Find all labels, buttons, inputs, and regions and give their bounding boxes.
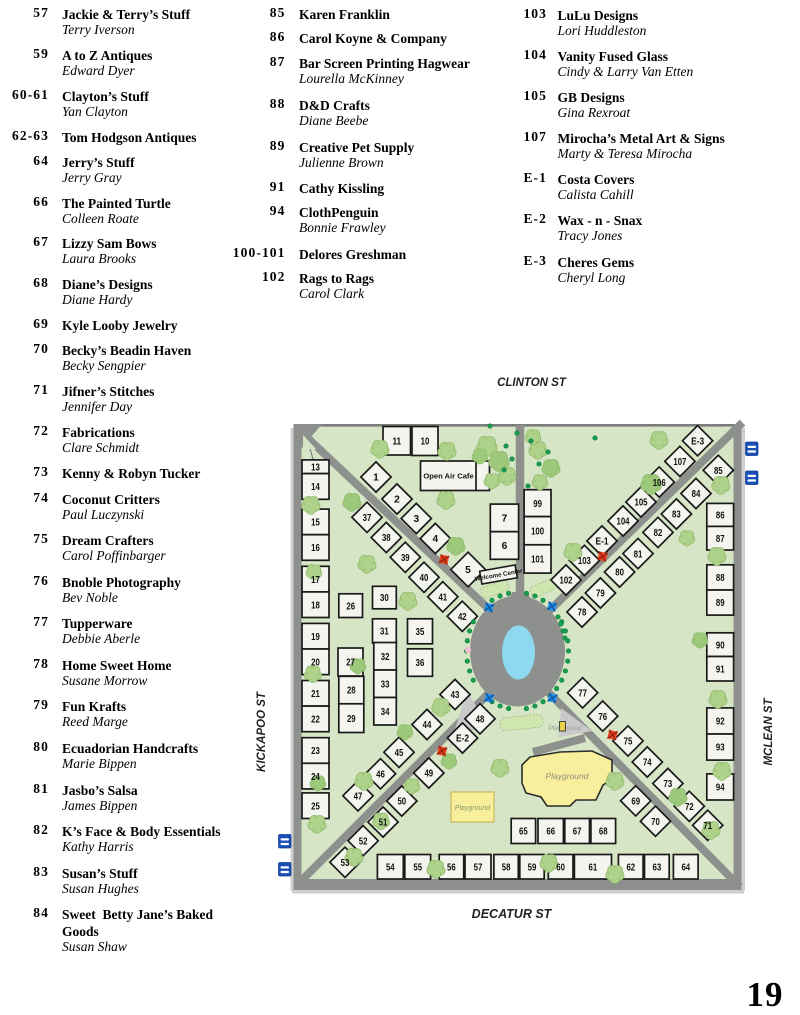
svg-text:44: 44: [423, 720, 432, 731]
svg-text:11: 11: [392, 436, 401, 447]
svg-text:83: 83: [672, 510, 681, 521]
svg-text:99: 99: [533, 499, 542, 510]
svg-text:56: 56: [447, 862, 456, 873]
svg-text:50: 50: [397, 797, 406, 808]
svg-text:85: 85: [714, 466, 723, 477]
svg-text:40: 40: [420, 573, 429, 584]
svg-text:16: 16: [311, 543, 320, 554]
svg-text:87: 87: [716, 534, 725, 545]
svg-text:Playground: Playground: [455, 805, 492, 812]
svg-text:74: 74: [643, 758, 652, 769]
svg-text:67: 67: [573, 827, 582, 838]
svg-text:21: 21: [311, 689, 320, 700]
svg-text:17: 17: [311, 575, 320, 586]
svg-text:13: 13: [311, 462, 320, 473]
svg-text:14: 14: [311, 482, 320, 493]
svg-text:80: 80: [615, 568, 624, 579]
svg-text:91: 91: [716, 664, 725, 675]
svg-text:15: 15: [311, 518, 320, 529]
svg-text:47: 47: [354, 792, 363, 803]
svg-text:103: 103: [578, 556, 591, 567]
svg-text:105: 105: [635, 498, 648, 509]
svg-text:66: 66: [546, 827, 555, 838]
svg-text:29: 29: [347, 714, 356, 725]
svg-text:1: 1: [373, 473, 379, 484]
svg-text:75: 75: [624, 737, 633, 748]
svg-text:54: 54: [386, 862, 395, 873]
svg-text:70: 70: [651, 817, 660, 828]
svg-text:31: 31: [380, 627, 389, 638]
svg-text:52: 52: [359, 836, 368, 847]
svg-text:64: 64: [681, 862, 690, 873]
svg-text:37: 37: [363, 513, 372, 524]
svg-text:93: 93: [716, 743, 725, 754]
svg-text:4: 4: [432, 534, 438, 545]
svg-text:69: 69: [631, 797, 640, 808]
svg-text:79: 79: [596, 589, 605, 600]
svg-text:84: 84: [692, 489, 701, 500]
svg-text:34: 34: [381, 707, 390, 718]
svg-text:22: 22: [311, 715, 320, 726]
svg-text:82: 82: [654, 528, 663, 539]
svg-text:59: 59: [528, 862, 537, 873]
svg-text:78: 78: [578, 608, 587, 619]
svg-text:81: 81: [634, 549, 643, 560]
svg-text:39: 39: [401, 553, 410, 564]
svg-text:3: 3: [413, 514, 419, 525]
svg-text:Playground: Playground: [545, 771, 588, 781]
svg-text:27: 27: [346, 658, 355, 669]
svg-text:18: 18: [311, 600, 320, 611]
svg-text:MCLEAN ST: MCLEAN ST: [763, 697, 775, 765]
svg-text:19: 19: [311, 632, 320, 643]
svg-text:48: 48: [476, 715, 485, 726]
svg-text:DECATUR ST: DECATUR ST: [472, 907, 553, 921]
svg-text:7: 7: [502, 514, 508, 525]
svg-text:KICKAPOO ST: KICKAPOO ST: [256, 691, 268, 772]
svg-text:102: 102: [560, 576, 573, 587]
svg-text:25: 25: [311, 801, 320, 812]
svg-text:41: 41: [438, 593, 447, 604]
svg-text:35: 35: [416, 627, 425, 638]
svg-text:10: 10: [421, 437, 430, 448]
svg-text:61: 61: [589, 862, 598, 873]
svg-text:71: 71: [703, 821, 712, 832]
svg-text:62: 62: [626, 862, 635, 873]
svg-text:72: 72: [685, 802, 694, 813]
svg-text:28: 28: [347, 686, 356, 697]
svg-text:5: 5: [465, 565, 471, 576]
svg-text:36: 36: [416, 658, 425, 669]
svg-text:20: 20: [311, 658, 320, 669]
svg-text:49: 49: [424, 769, 433, 780]
svg-text:23: 23: [311, 746, 320, 757]
svg-text:26: 26: [346, 601, 355, 612]
svg-text:88: 88: [716, 573, 725, 584]
svg-text:76: 76: [598, 712, 607, 723]
svg-text:51: 51: [379, 818, 388, 829]
svg-text:89: 89: [716, 598, 725, 609]
svg-text:55: 55: [413, 862, 422, 873]
svg-text:38: 38: [382, 533, 391, 544]
svg-text:32: 32: [381, 652, 390, 663]
svg-text:63: 63: [653, 862, 662, 873]
svg-text:E-1: E-1: [596, 537, 609, 548]
svg-text:101: 101: [531, 555, 544, 566]
svg-text:6: 6: [502, 541, 508, 552]
svg-text:45: 45: [395, 748, 404, 759]
svg-text:92: 92: [716, 717, 725, 728]
svg-text:CLINTON ST: CLINTON ST: [497, 377, 567, 389]
svg-text:E-2: E-2: [456, 734, 469, 745]
svg-text:100: 100: [531, 526, 544, 537]
svg-text:73: 73: [664, 779, 673, 790]
svg-text:24: 24: [311, 772, 320, 783]
svg-text:77: 77: [578, 689, 587, 700]
svg-text:90: 90: [716, 640, 725, 651]
svg-text:43: 43: [451, 690, 460, 701]
svg-text:E-3: E-3: [691, 436, 704, 447]
svg-text:Open Air Cafe: Open Air Cafe: [423, 472, 473, 481]
svg-text:68: 68: [599, 827, 608, 838]
svg-text:42: 42: [458, 612, 467, 623]
svg-text:33: 33: [381, 679, 390, 690]
svg-text:30: 30: [380, 593, 389, 604]
svg-text:2: 2: [394, 495, 400, 506]
svg-text:57: 57: [474, 862, 483, 873]
svg-text:60: 60: [556, 862, 565, 873]
svg-text:107: 107: [673, 457, 686, 468]
svg-text:106: 106: [653, 478, 666, 489]
svg-text:46: 46: [376, 770, 385, 781]
svg-text:53: 53: [341, 858, 350, 869]
svg-text:65: 65: [519, 827, 528, 838]
svg-text:58: 58: [502, 862, 511, 873]
svg-text:86: 86: [716, 511, 725, 522]
svg-text:104: 104: [617, 517, 630, 528]
svg-text:94: 94: [716, 783, 725, 794]
